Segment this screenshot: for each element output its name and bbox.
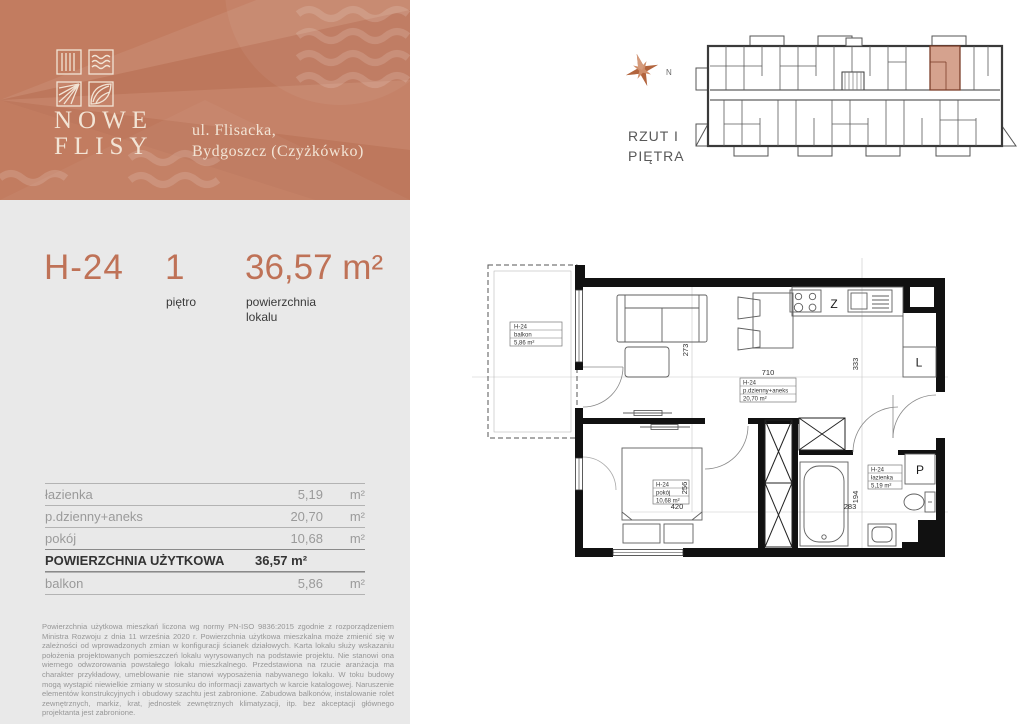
room-label: p.dzienny+aneks	[45, 509, 263, 524]
overview-caption: RZUT I PIĘTRA	[628, 126, 685, 166]
room-unit: m²	[323, 531, 365, 546]
svg-text:H-24: H-24	[656, 482, 670, 488]
building-overview-map	[694, 28, 1018, 168]
dim-kitchen-height: 333	[851, 358, 860, 371]
svg-text:H-24: H-24	[871, 467, 885, 473]
room-area: 20,70	[263, 509, 323, 524]
fridge-label: L	[916, 356, 923, 370]
dim-room-width: 420	[671, 502, 684, 511]
dim-bath-width: 283	[844, 502, 857, 511]
room-unit: m²	[323, 487, 365, 502]
table-row: łazienka 5,19 m²	[45, 483, 365, 505]
svg-text:łazienka: łazienka	[871, 475, 894, 481]
balcony: H-24 balkon 5,86 m²	[488, 265, 577, 438]
minimap-unit-highlight	[930, 46, 960, 90]
unit-area-value: 36,57 m²	[245, 248, 383, 288]
wardrobe	[765, 420, 792, 547]
room-label: łazienka	[45, 487, 263, 502]
shaft-box	[799, 418, 845, 450]
room-unit: m²	[323, 576, 365, 591]
washer-label: P	[916, 463, 924, 477]
address-line2: Bydgoszcz (Czyżkówko)	[192, 141, 364, 162]
brand-name: NOWE FLISY	[54, 108, 153, 160]
header-pattern	[0, 0, 410, 200]
bath-tag: H-24 łazienka 5,19 m²	[868, 465, 902, 489]
bathtub-icon	[800, 462, 848, 546]
dim-living-height: 273	[681, 344, 690, 357]
compass-rose: N	[616, 42, 686, 97]
floorplan-drawing: H-24 balkon 5,86 m²	[470, 250, 950, 562]
brand-line1: NOWE	[54, 108, 153, 134]
dishwasher-label: Z	[830, 297, 837, 311]
unit-area-label: powierzchnia lokalu	[246, 295, 316, 325]
room-unit: m²	[323, 509, 365, 524]
table-row-total: POWIERZCHNIA UŻYTKOWA 36,57 m²	[45, 549, 365, 572]
svg-text:H-24: H-24	[514, 324, 528, 330]
svg-text:5,86 m²: 5,86 m²	[514, 340, 534, 346]
total-value: 36,57 m²	[247, 553, 365, 568]
svg-text:5,19 m²: 5,19 m²	[871, 483, 891, 489]
table-row: pokój 10,68 m²	[45, 527, 365, 549]
room-area: 5,19	[263, 487, 323, 502]
room-area: 5,86	[263, 576, 323, 591]
balcony-tag: H-24 balkon 5,86 m²	[510, 322, 562, 346]
svg-text:balkon: balkon	[514, 332, 532, 338]
apartment-card-page: NOWE FLISY ul. Flisacka, Bydgoszcz (Czyż…	[0, 0, 1024, 724]
unit-code: H-24	[44, 248, 124, 288]
fridge-spot: L	[903, 347, 936, 377]
dining-set	[738, 293, 793, 350]
svg-text:p.dzienny+aneks: p.dzienny+aneks	[743, 388, 788, 394]
svg-text:pokój: pokój	[656, 490, 670, 496]
room-area: 10,68	[263, 531, 323, 546]
room-label: balkon	[45, 576, 263, 591]
stove-icon	[790, 290, 821, 312]
svg-text:20,70 m²: 20,70 m²	[743, 396, 767, 402]
room-label: pokój	[45, 531, 263, 546]
brand-line2: FLISY	[54, 134, 153, 160]
bath-sink-icon	[868, 524, 896, 546]
address-line1: ul. Flisacka,	[192, 120, 364, 141]
unit-floor-label: piętro	[166, 295, 196, 309]
grid-lines	[472, 258, 948, 556]
coffee-table	[625, 347, 669, 377]
brand-header: NOWE FLISY ul. Flisacka, Bydgoszcz (Czyż…	[0, 0, 410, 200]
compass-north-label: N	[666, 68, 672, 77]
dim-room-height: 256	[680, 482, 689, 495]
total-label: POWIERZCHNIA UŻYTKOWA	[45, 553, 247, 568]
table-row: p.dzienny+aneks 20,70 m²	[45, 505, 365, 527]
unit-floor-value: 1	[165, 248, 184, 288]
rooms-table: łazienka 5,19 m² p.dzienny+aneks 20,70 m…	[45, 483, 365, 595]
dim-living-width: 710	[762, 368, 775, 377]
svg-text:H-24: H-24	[743, 380, 757, 386]
sofa	[617, 295, 707, 342]
shaft-opening	[910, 287, 934, 307]
project-address: ul. Flisacka, Bydgoszcz (Czyżkówko)	[192, 120, 364, 162]
kitchen-sink-icon	[848, 290, 892, 312]
washer-spot: P	[905, 454, 935, 484]
legal-disclaimer: Powierzchnia użytkowa mieszkań liczona w…	[42, 622, 394, 718]
living-tag: H-24 p.dzienny+aneks 20,70 m²	[740, 378, 796, 402]
table-row: balkon 5,86 m²	[45, 572, 365, 595]
toilet-icon	[904, 492, 935, 512]
